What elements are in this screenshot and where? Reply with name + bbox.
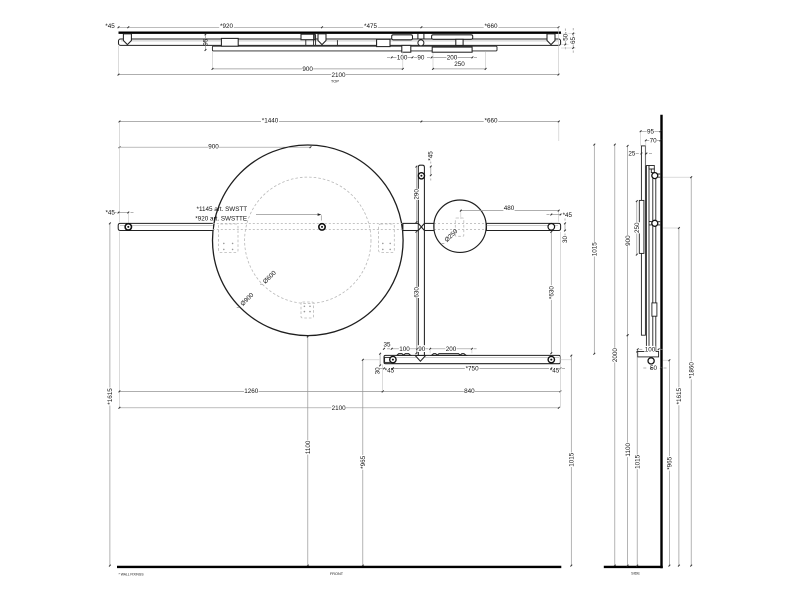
svg-text:2000: 2000: [612, 348, 619, 363]
svg-text:100: 100: [397, 55, 408, 62]
svg-text:*965: *965: [667, 456, 674, 469]
svg-text:840: 840: [464, 388, 475, 395]
svg-text:480: 480: [504, 205, 515, 212]
svg-text:90: 90: [417, 54, 425, 61]
svg-text:1100: 1100: [625, 443, 632, 457]
svg-text:SIDE: SIDE: [631, 572, 640, 576]
svg-text:30: 30: [374, 367, 381, 375]
svg-text:900: 900: [625, 235, 632, 246]
svg-text:* WALL FIXINGS: * WALL FIXINGS: [119, 573, 145, 577]
svg-text:95: 95: [647, 129, 655, 136]
svg-text:*1860: *1860: [688, 362, 695, 379]
svg-text:*920 art. SWSTTE: *920 art. SWSTTE: [195, 216, 247, 223]
svg-text:*660: *660: [485, 23, 498, 30]
svg-text:70: 70: [650, 138, 658, 145]
svg-text:250: 250: [454, 61, 465, 68]
svg-text:*630: *630: [549, 286, 556, 299]
svg-text:1015: 1015: [634, 454, 641, 469]
svg-text:50: 50: [650, 365, 658, 372]
svg-text:*1615: *1615: [676, 387, 683, 404]
svg-text:100: 100: [645, 347, 656, 354]
svg-text:200: 200: [446, 346, 457, 353]
svg-text:*920: *920: [220, 23, 233, 30]
svg-text:*1440: *1440: [262, 118, 279, 125]
svg-text:1015: 1015: [569, 452, 576, 467]
svg-text:*965: *965: [360, 455, 367, 468]
svg-text:*45: *45: [105, 23, 115, 30]
svg-text:100: 100: [399, 346, 410, 353]
svg-text:FRONT: FRONT: [330, 572, 344, 576]
svg-text:65: 65: [570, 37, 577, 45]
svg-text:900: 900: [208, 144, 219, 151]
svg-text:*1145 art. SWSTT: *1145 art. SWSTT: [197, 206, 248, 213]
svg-text:*660: *660: [485, 118, 498, 125]
svg-text:900: 900: [302, 66, 313, 73]
svg-text:95: 95: [203, 38, 210, 46]
svg-text:35: 35: [383, 342, 391, 349]
svg-text:*45: *45: [105, 210, 115, 217]
svg-text:*1615: *1615: [107, 388, 114, 405]
svg-text:1260: 1260: [244, 388, 259, 395]
svg-text:630: 630: [414, 287, 421, 298]
svg-text:*45: *45: [563, 212, 573, 219]
svg-text:250: 250: [634, 222, 641, 233]
svg-text:TOP: TOP: [331, 79, 339, 84]
svg-text:30: 30: [562, 236, 569, 244]
svg-text:2100: 2100: [332, 405, 347, 412]
svg-text:*475: *475: [364, 23, 377, 30]
svg-text:90: 90: [418, 346, 426, 353]
svg-text:*45: *45: [428, 151, 435, 161]
svg-text:50: 50: [562, 33, 569, 41]
svg-text:1100: 1100: [305, 440, 312, 454]
svg-text:*750: *750: [466, 366, 479, 373]
svg-text:290: 290: [414, 189, 421, 200]
svg-text:25: 25: [628, 151, 636, 158]
svg-text:1015: 1015: [592, 242, 599, 257]
